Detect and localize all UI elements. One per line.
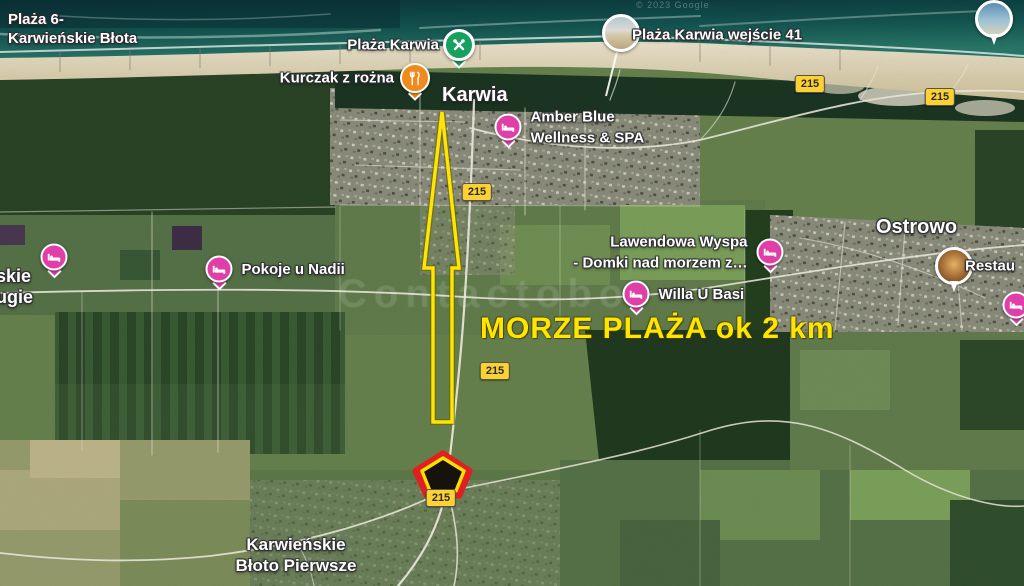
photo-pin-wejscie-41[interactable]: Plaża Karwia wejście 41	[602, 14, 640, 52]
area-label-line: ugie	[0, 287, 33, 308]
map-attribution: © 2023 Google	[636, 0, 710, 10]
photo-pin-restaurant[interactable]: Restau	[935, 247, 973, 285]
poi-label[interactable]: Kurczak z rożna	[280, 70, 394, 87]
road-shield-215: 215	[480, 362, 510, 380]
bed-icon	[495, 114, 522, 141]
photo-thumbnail	[975, 0, 1013, 38]
bed-icon	[623, 281, 650, 308]
bed-icon	[41, 244, 68, 271]
distance-note-text: MORZE PLAŻA ok 2 km	[480, 312, 835, 346]
poi-pin-lodging-unlabeled[interactable]	[41, 244, 68, 271]
road-shield-215: 215	[426, 489, 456, 507]
town-label-ostrowo: Ostrowo	[876, 216, 957, 239]
crossed-tools-icon	[443, 29, 475, 61]
poi-pin-willa-u-basi[interactable]: Willa U Basi	[623, 281, 650, 308]
area-label-bloto-pierwsze: Karwieńskie Błoto Pierwsze	[198, 534, 394, 576]
poi-label[interactable]: Plaża Karwia	[347, 37, 439, 54]
poi-pin-kurczak[interactable]: Kurczak z rożna	[400, 63, 430, 93]
area-label-bloto-drugie-partial: skie ugie	[0, 266, 33, 308]
watermark: Contactobo	[338, 272, 630, 317]
area-label-line: Plaża 6-	[8, 10, 137, 29]
area-label-line: Karwieńskie	[198, 534, 394, 555]
area-label-line: Karwieńskie Błota	[8, 29, 137, 48]
poi-label[interactable]: Amber Blue Wellness & SPA	[531, 106, 645, 148]
fork-knife-icon	[400, 63, 430, 93]
poi-pin-lodging-edge-cut[interactable]	[1003, 292, 1024, 319]
poi-pin-pokoje-u-nadii[interactable]: Pokoje u Nadii	[206, 256, 233, 283]
photo-pin-top-right[interactable]	[975, 0, 1013, 38]
road-shield-215: 215	[462, 183, 492, 201]
area-label-plaza6: Plaża 6- Karwieńskie Błota	[8, 10, 137, 48]
road-shield-215: 215	[925, 88, 955, 106]
poi-label[interactable]: Lawendowa Wyspa - Domki nad morzem z…	[573, 231, 747, 273]
poi-pin-amber-blue[interactable]: Amber Blue Wellness & SPA	[495, 114, 522, 141]
map-canvas[interactable]: Contactobo © 2023 Google MORZE PLAŻA ok …	[0, 0, 1024, 586]
poi-pin-lawendowa-wyspa[interactable]: Lawendowa Wyspa - Domki nad morzem z…	[757, 239, 784, 266]
poi-label[interactable]: Restau	[965, 258, 1015, 275]
bed-icon	[1003, 292, 1024, 319]
bed-icon	[757, 239, 784, 266]
town-label-karwia: Karwia	[442, 84, 508, 107]
poi-label-line: Wellness & SPA	[531, 127, 645, 148]
poi-label[interactable]: Pokoje u Nadii	[242, 261, 345, 278]
area-label-line: skie	[0, 266, 33, 287]
poi-label-line: Lawendowa Wyspa	[573, 231, 747, 252]
poi-label[interactable]: Plaża Karwia wejście 41	[632, 27, 802, 44]
poi-label-line: Amber Blue	[531, 106, 645, 127]
poi-label-line: - Domki nad morzem z…	[573, 252, 747, 273]
bed-icon	[206, 256, 233, 283]
area-label-line: Błoto Pierwsze	[198, 555, 394, 576]
road-shield-215: 215	[795, 75, 825, 93]
poi-pin-plaza-karwia[interactable]: Plaża Karwia	[443, 29, 475, 61]
poi-label[interactable]: Willa U Basi	[659, 286, 745, 303]
